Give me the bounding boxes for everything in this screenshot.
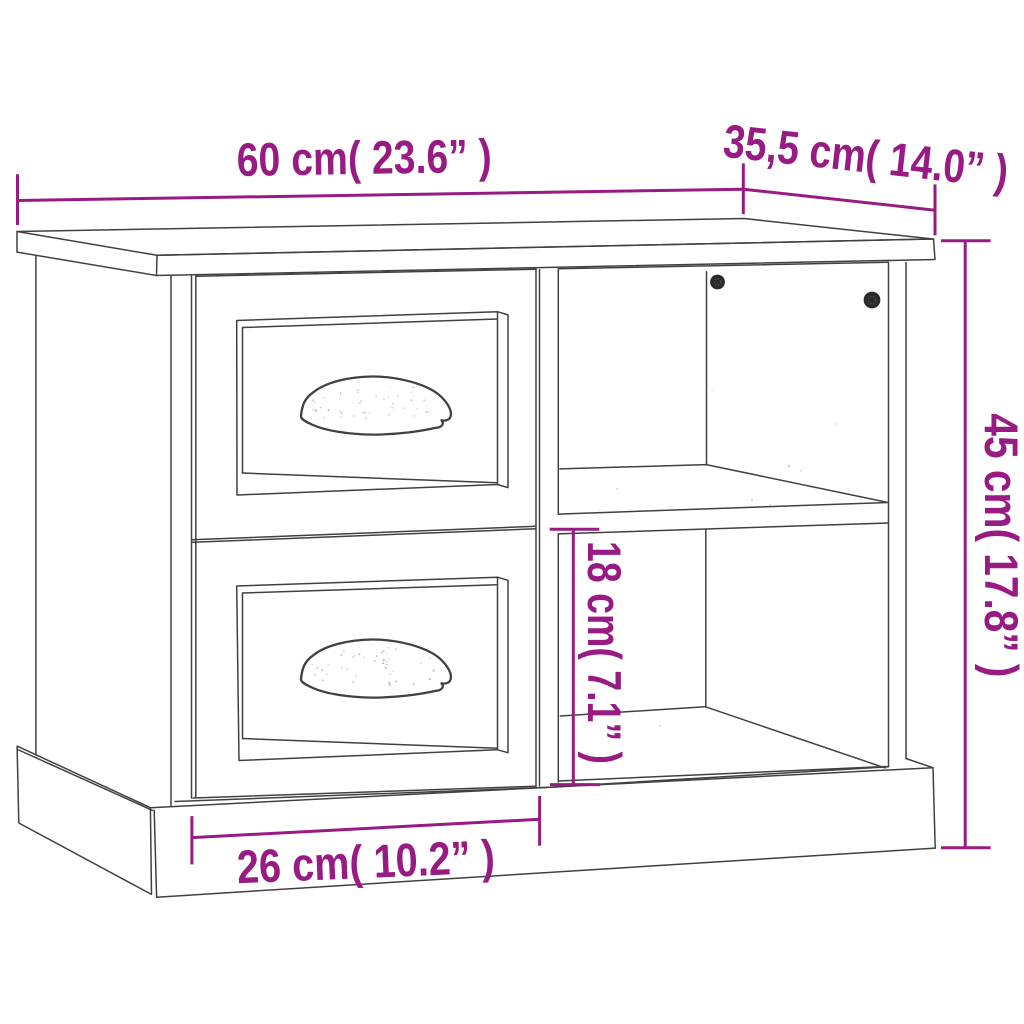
svg-text:35,5 cm( 14.0” ): 35,5 cm( 14.0” ) (721, 114, 1011, 198)
svg-text:18 cm( 7.1” ): 18 cm( 7.1” ) (578, 541, 631, 764)
svg-text:26 cm( 10.2” ): 26 cm( 10.2” ) (236, 830, 496, 894)
svg-text:60 cm( 23.6” ): 60 cm( 23.6” ) (236, 129, 492, 186)
svg-text:45 cm( 17.8” ): 45 cm( 17.8” ) (975, 413, 1024, 677)
